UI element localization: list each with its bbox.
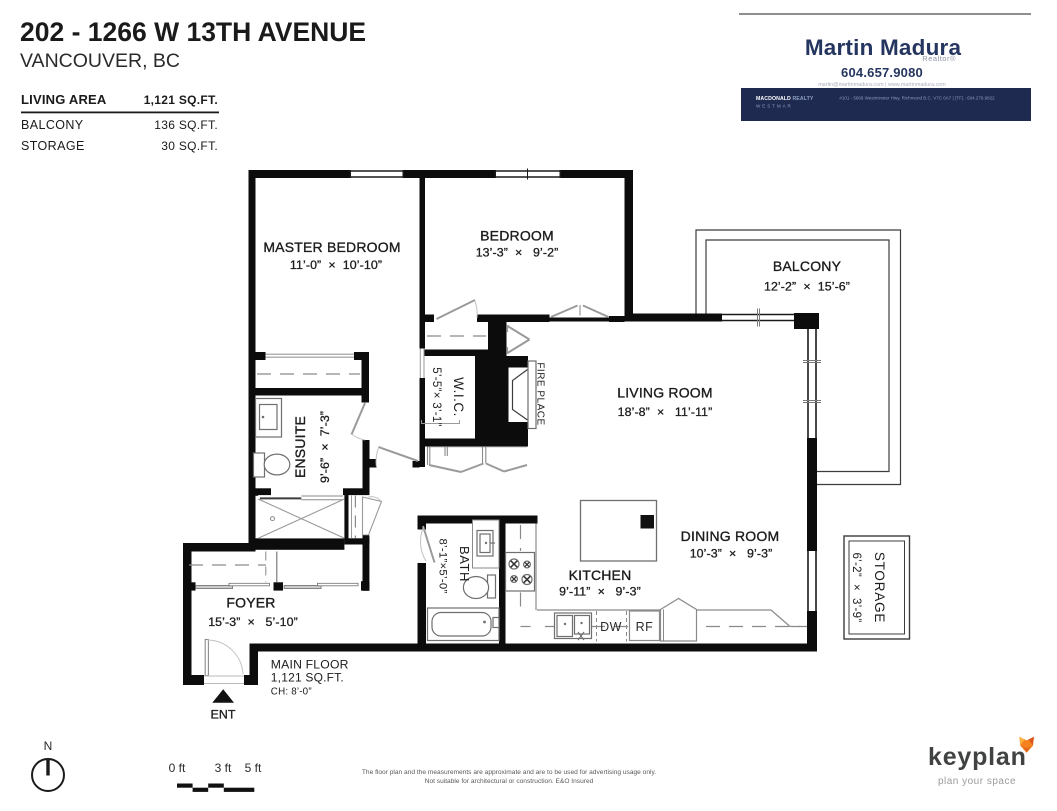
svg-text:BALCONY: BALCONY xyxy=(773,258,842,274)
svg-text:3 ft: 3 ft xyxy=(215,761,232,775)
svg-text:Not suitable for architectural: Not suitable for architectural or constr… xyxy=(425,778,594,785)
svg-text:9’-11” × 9’-3”: 9’-11” × 9’-3” xyxy=(559,585,641,599)
svg-text:BATH: BATH xyxy=(457,546,472,582)
svg-text:BEDROOM: BEDROOM xyxy=(480,228,554,244)
svg-text:604.657.9080: 604.657.9080 xyxy=(841,65,923,80)
svg-text:12’-2” × 15’-6”: 12’-2” × 15’-6” xyxy=(764,280,850,294)
svg-text:keyplan: keyplan xyxy=(928,743,1027,771)
svg-text:KITCHEN: KITCHEN xyxy=(569,567,632,583)
svg-text:BALCONY: BALCONY xyxy=(21,118,84,132)
svg-text:MACDONALD REALTY: MACDONALD REALTY xyxy=(756,96,814,102)
svg-text:#101 - 5668 Westminster Hwy, R: #101 - 5668 Westminster Hwy, Richmond B.… xyxy=(839,96,995,101)
svg-text:9’-6” × 7’-3”: 9’-6” × 7’-3” xyxy=(318,411,332,483)
svg-text:Realtor®: Realtor® xyxy=(922,54,956,63)
svg-text:LIVING ROOM: LIVING ROOM xyxy=(617,385,713,401)
svg-text:CH: 8’-0”: CH: 8’-0” xyxy=(271,687,312,698)
svg-text:ENT: ENT xyxy=(210,708,235,722)
svg-text:10’-3” × 9’-3”: 10’-3” × 9’-3” xyxy=(690,547,773,561)
svg-text:8’-1”×5’-0”: 8’-1”×5’-0” xyxy=(437,538,449,593)
svg-text:30 SQ.FT.: 30 SQ.FT. xyxy=(161,139,218,153)
svg-text:FIRE PLACE: FIRE PLACE xyxy=(535,362,546,425)
svg-text:ENSUITE: ENSUITE xyxy=(292,416,308,478)
svg-text:martin@martinmadura.com | www.: martin@martinmadura.com | www.martinmadu… xyxy=(818,82,946,88)
svg-text:FOYER: FOYER xyxy=(226,595,275,611)
svg-text:5 ft: 5 ft xyxy=(245,761,262,775)
svg-text:MASTER BEDROOM: MASTER BEDROOM xyxy=(263,239,400,255)
svg-text:6’-2” × 3’-9”: 6’-2” × 3’-9” xyxy=(850,552,862,622)
svg-text:WESTMAR: WESTMAR xyxy=(756,104,793,109)
svg-text:N: N xyxy=(44,739,53,753)
svg-text:RF: RF xyxy=(636,620,654,634)
svg-text:The floor plan and the measure: The floor plan and the measurements are … xyxy=(362,769,656,776)
svg-text:15’-3” × 5’-10”: 15’-3” × 5’-10” xyxy=(208,615,298,629)
svg-text:DW: DW xyxy=(600,620,622,634)
svg-text:W.I.C.: W.I.C. xyxy=(451,377,466,417)
svg-text:0 ft: 0 ft xyxy=(169,761,186,775)
svg-text:plan your space: plan your space xyxy=(938,776,1016,787)
svg-text:13’-3” × 9’-2”: 13’-3” × 9’-2” xyxy=(476,246,559,260)
svg-text:MAIN FLOOR: MAIN FLOOR xyxy=(271,658,349,672)
svg-text:VANCOUVER, BC: VANCOUVER, BC xyxy=(20,50,180,72)
svg-text:18’-8” × 11’-11”: 18’-8” × 11’-11” xyxy=(618,405,713,419)
svg-text:STORAGE: STORAGE xyxy=(872,552,887,623)
svg-text:STORAGE: STORAGE xyxy=(21,139,85,153)
svg-text:11’-0” × 10’-10”: 11’-0” × 10’-10” xyxy=(290,258,382,272)
svg-text:5’-5”× 3’-1”: 5’-5”× 3’-1” xyxy=(430,367,442,427)
svg-text:202 - 1266 W 13TH AVENUE: 202 - 1266 W 13TH AVENUE xyxy=(20,17,366,47)
svg-text:LIVING AREA: LIVING AREA xyxy=(21,92,107,107)
svg-text:DINING ROOM: DINING ROOM xyxy=(681,528,780,544)
svg-text:1,121 SQ.FT.: 1,121 SQ.FT. xyxy=(144,93,218,107)
svg-text:1,121 SQ.FT.: 1,121 SQ.FT. xyxy=(271,671,344,685)
svg-text:136 SQ.FT.: 136 SQ.FT. xyxy=(154,118,218,132)
